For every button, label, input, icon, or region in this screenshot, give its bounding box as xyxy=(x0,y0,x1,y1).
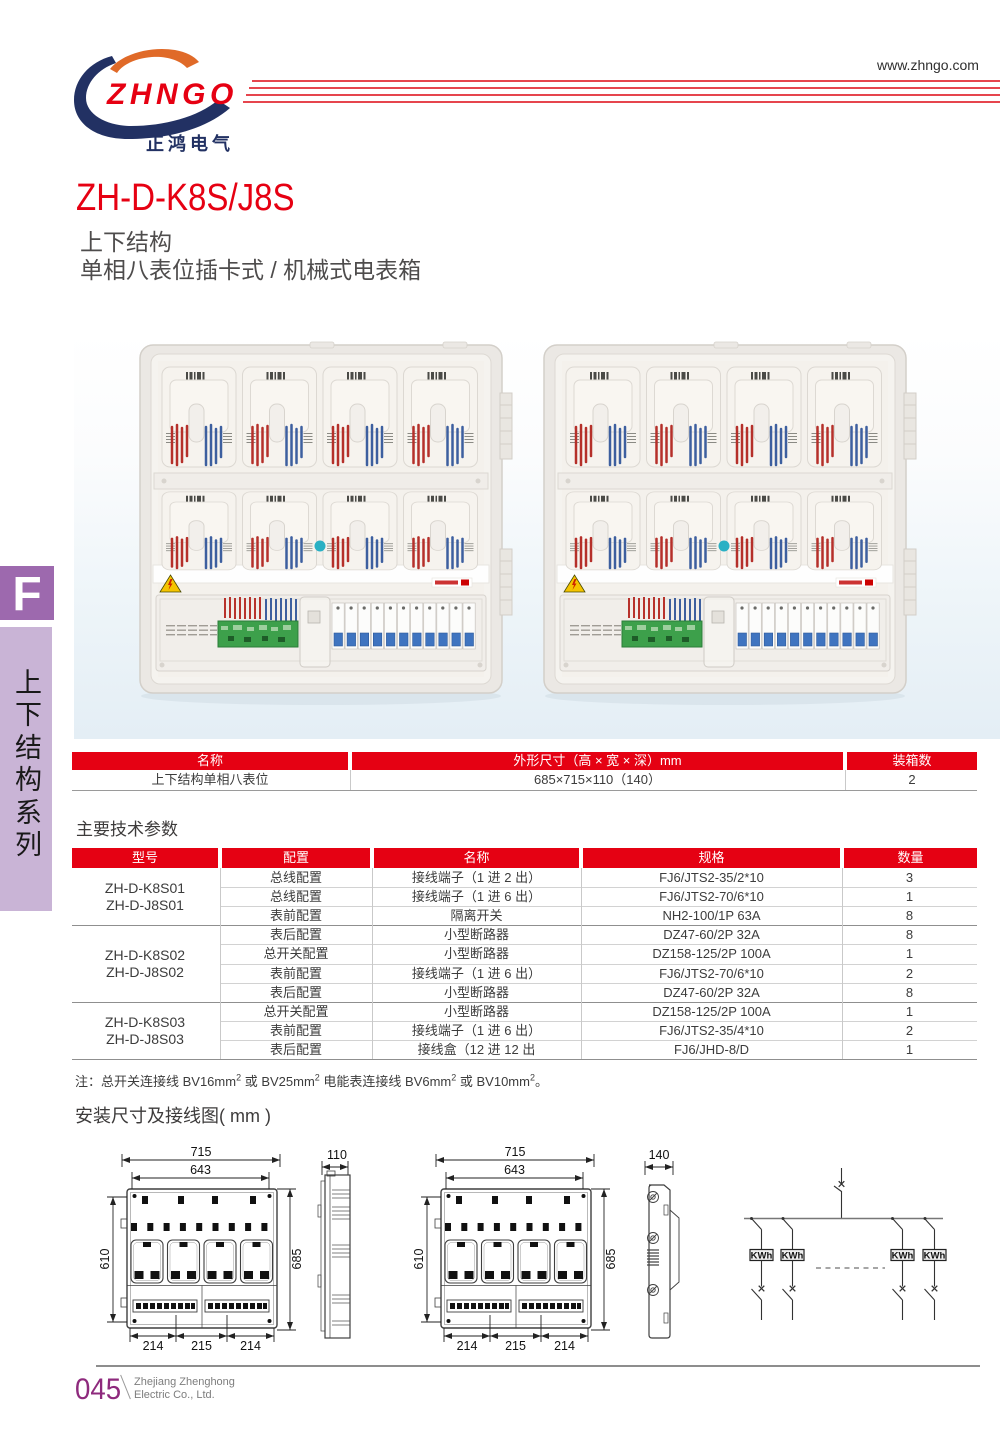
svg-text:正鸿电气: 正鸿电气 xyxy=(146,133,234,154)
svg-text:ZHNGO: ZHNGO xyxy=(106,78,238,111)
svg-text:140: 140 xyxy=(649,1148,670,1162)
svg-text:KWh: KWh xyxy=(892,1251,914,1262)
svg-text:KWh: KWh xyxy=(751,1251,773,1262)
svg-text:110: 110 xyxy=(327,1148,347,1162)
svg-text:KWh: KWh xyxy=(924,1251,946,1262)
svg-text:KWh: KWh xyxy=(782,1251,804,1262)
